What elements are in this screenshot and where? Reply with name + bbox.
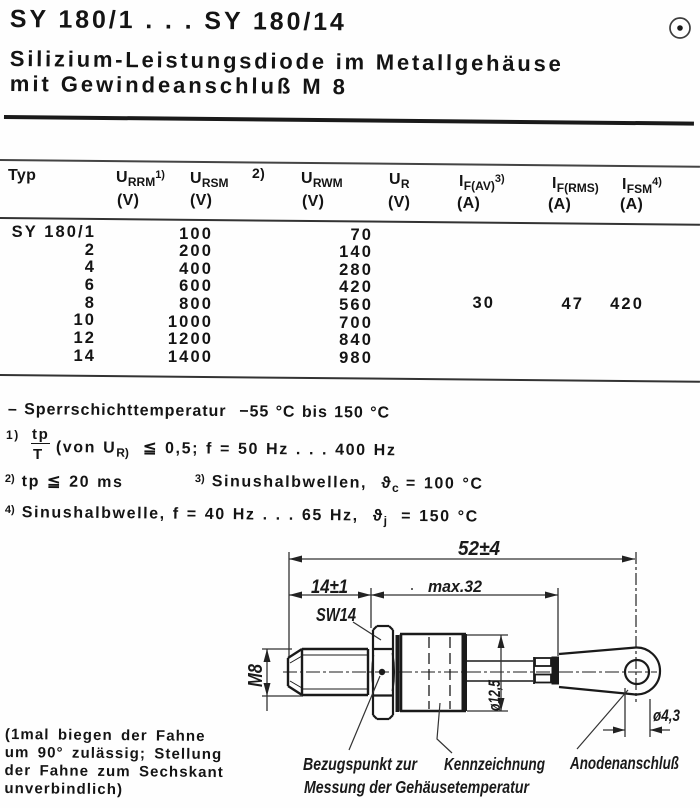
svg-text:SW14: SW14 xyxy=(316,605,356,625)
svg-text:max.32: max.32 xyxy=(428,577,482,596)
svg-text:ø4,3: ø4,3 xyxy=(653,707,680,725)
svg-text:14±1: 14±1 xyxy=(311,577,348,598)
svg-text:52±4: 52±4 xyxy=(458,538,500,560)
svg-text:Bezugspunkt zur: Bezugspunkt zur xyxy=(303,754,418,774)
svg-text:Kennzeichnung: Kennzeichnung xyxy=(444,754,545,774)
svg-text:ø12,5: ø12,5 xyxy=(485,680,504,711)
svg-text:Messung der Gehäusetemperatur: Messung der Gehäusetemperatur xyxy=(304,777,530,797)
svg-text:M8: M8 xyxy=(245,663,267,687)
svg-text:Anodenanschluß: Anodenanschluß xyxy=(569,753,679,773)
